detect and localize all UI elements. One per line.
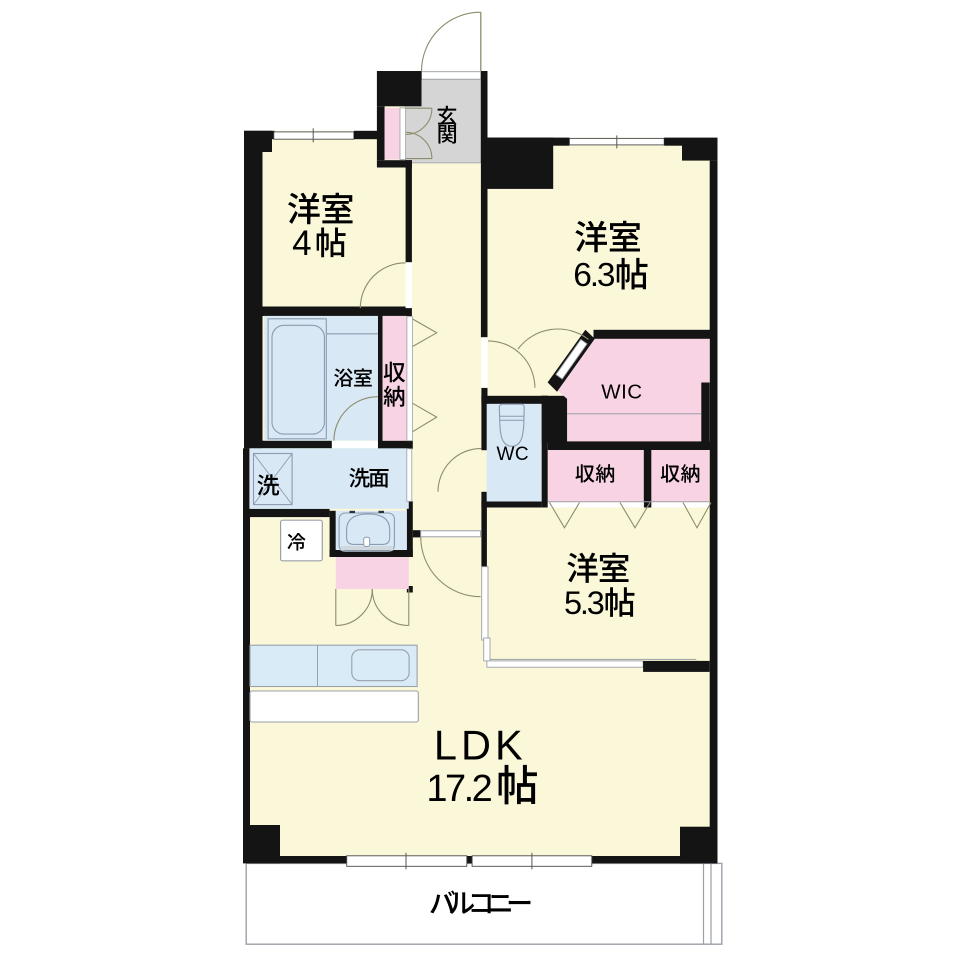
svg-text:17.2: 17.2	[426, 768, 491, 810]
svg-text:WIC: WIC	[601, 380, 642, 403]
svg-text:6.3: 6.3	[573, 257, 615, 294]
svg-text:WC: WC	[496, 444, 529, 465]
svg-text:4: 4	[292, 224, 311, 263]
svg-text:5.3: 5.3	[564, 585, 604, 621]
svg-text:LDK: LDK	[434, 721, 527, 768]
